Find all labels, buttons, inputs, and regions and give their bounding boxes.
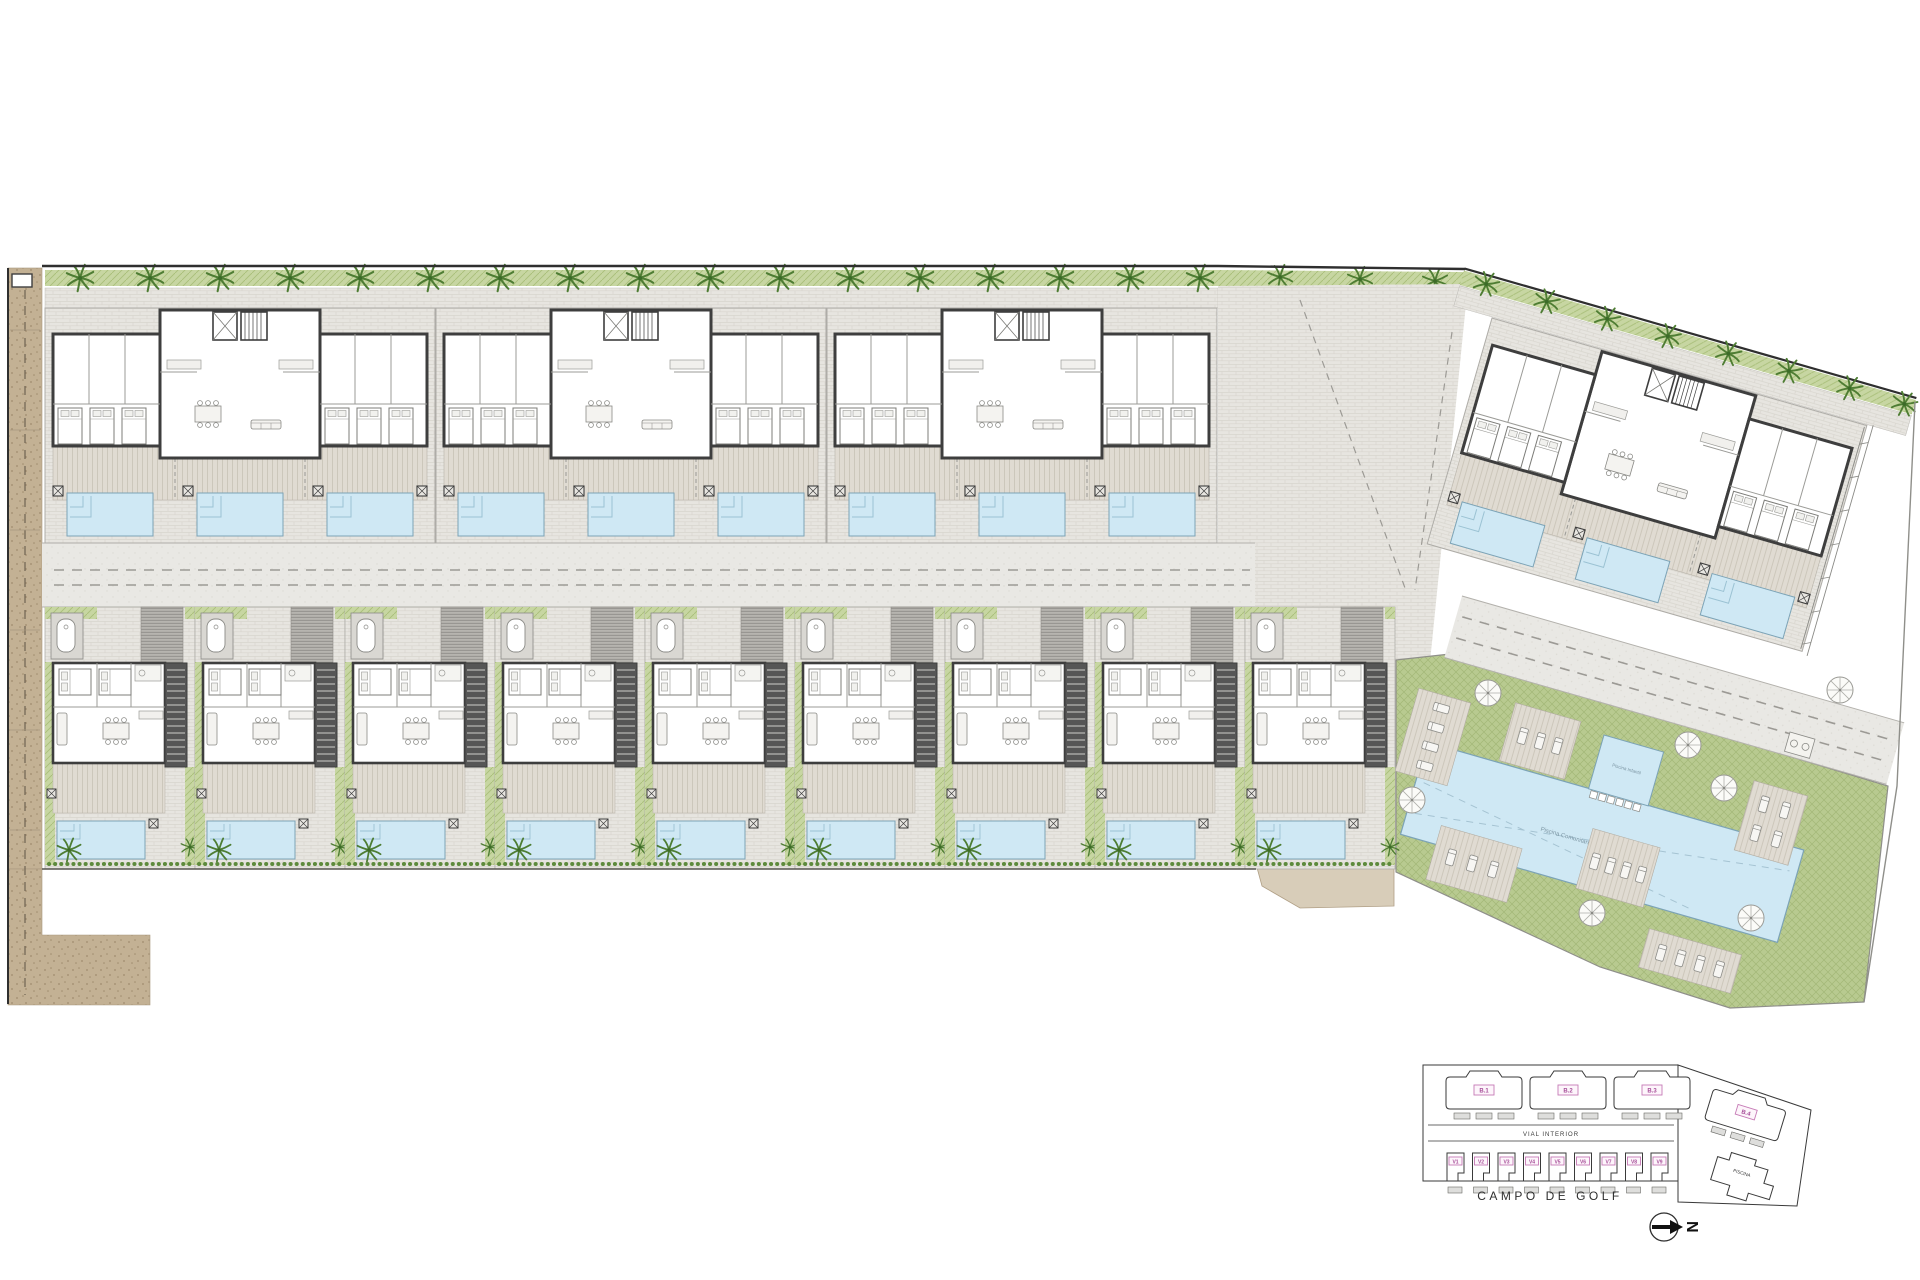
villa-v5 (645, 607, 799, 869)
key-plan-villa-v3: V3 (1498, 1153, 1515, 1193)
villa-v2 (195, 607, 349, 869)
villa-v9 (1245, 607, 1399, 869)
svg-text:B.1: B.1 (1479, 1089, 1489, 1095)
turning-apron (1218, 284, 1468, 662)
campo-de-golf-label: CAMPO DE GOLF (1477, 1189, 1623, 1203)
svg-text:V5: V5 (1554, 1160, 1560, 1166)
svg-text:V1: V1 (1452, 1160, 1458, 1166)
villa-v6 (795, 607, 949, 869)
site-plan-drawing: Piscina Comunitaria Piscina Infantil (0, 0, 1920, 1280)
svg-text:V7: V7 (1605, 1160, 1611, 1166)
svg-text:V4: V4 (1529, 1160, 1535, 1166)
golf-side-path (1256, 864, 1394, 908)
svg-text:V8: V8 (1631, 1160, 1637, 1166)
svg-text:B.2: B.2 (1563, 1089, 1573, 1095)
villa-v3 (345, 607, 499, 869)
svg-text:V2: V2 (1478, 1160, 1484, 1166)
svg-text:V3: V3 (1503, 1160, 1509, 1166)
key-plan-villa-v4: V4 (1524, 1153, 1541, 1193)
villa-v7 (945, 607, 1099, 869)
apartment-block-b2 (436, 308, 826, 543)
key-plan-villa-v6: V6 (1575, 1153, 1592, 1193)
key-plan-villa-v9: V9 (1651, 1153, 1668, 1193)
svg-text:V9: V9 (1656, 1160, 1662, 1166)
apartment-block-b1 (45, 308, 435, 543)
villa-v4 (495, 607, 649, 869)
key-plan-villa-v2: V2 (1473, 1153, 1490, 1193)
villa-v8 (1095, 607, 1249, 869)
key-plan: B.1 B.2 B.3 VIAL INTERIOR V1 V2 V3 V4 V5 (1423, 1065, 1811, 1241)
villa-row (45, 607, 1399, 869)
site-plan-page: Piscina Comunitaria Piscina Infantil (0, 0, 1920, 1280)
key-plan-villa-v8: V8 (1626, 1153, 1643, 1193)
key-plan-villa-v1: V1 (1447, 1153, 1464, 1193)
vial-interior-label: VIAL INTERIOR (1523, 1132, 1579, 1138)
villa-v1 (45, 607, 199, 869)
key-plan-villa-v5: V5 (1549, 1153, 1566, 1193)
north-arrow: N (1650, 1213, 1700, 1241)
svg-text:V6: V6 (1580, 1160, 1586, 1166)
svg-text:N: N (1683, 1221, 1700, 1233)
apartment-block-b3 (827, 308, 1217, 543)
svg-text:B.3: B.3 (1647, 1089, 1657, 1095)
key-plan-villa-v7: V7 (1600, 1153, 1617, 1193)
